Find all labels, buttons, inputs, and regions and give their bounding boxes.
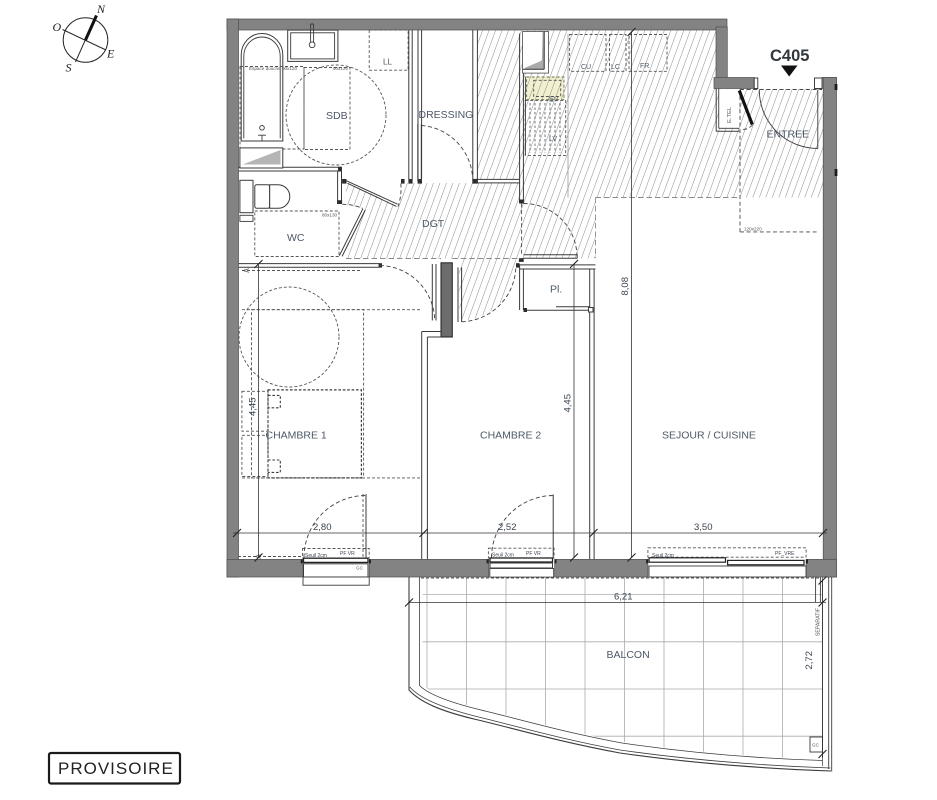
svg-text:PROVISOIRE: PROVISOIRE: [58, 759, 174, 778]
svg-text:LC: LC: [611, 64, 620, 71]
svg-text:N: N: [96, 2, 106, 16]
svg-text:LV: LV: [549, 136, 557, 143]
svg-text:4,45: 4,45: [248, 398, 259, 417]
svg-text:2,72: 2,72: [804, 651, 815, 670]
svg-text:80x130: 80x130: [322, 213, 338, 218]
svg-text:2,52: 2,52: [498, 522, 517, 533]
svg-text:BALCON: BALCON: [607, 649, 650, 661]
svg-text:120x220: 120x220: [744, 227, 762, 232]
svg-text:Espace douche 90x120: Espace douche 90x120: [249, 66, 297, 71]
svg-text:E: E: [106, 47, 115, 61]
svg-text:EV: EV: [549, 97, 559, 104]
svg-text:E.TEL: E.TEL: [727, 106, 733, 123]
svg-text:WC: WC: [287, 232, 305, 244]
svg-text:GC: GC: [812, 743, 820, 748]
svg-text:2,80: 2,80: [313, 522, 332, 533]
svg-text:4,45: 4,45: [563, 394, 574, 413]
svg-text:Seuil 2cm: Seuil 2cm: [492, 553, 514, 559]
svg-text:CHAMBRE 2: CHAMBRE 2: [480, 430, 541, 442]
svg-text:C405: C405: [770, 47, 809, 65]
svg-text:SDB: SDB: [326, 110, 348, 122]
svg-text:LL: LL: [383, 58, 392, 67]
svg-text:8,08: 8,08: [620, 277, 631, 296]
svg-text:FR: FR: [640, 63, 649, 70]
svg-text:DGT: DGT: [422, 218, 445, 230]
svg-text:ENTREE: ENTREE: [767, 129, 810, 141]
svg-text:PF VR: PF VR: [340, 551, 355, 557]
svg-text:CU: CU: [581, 64, 591, 71]
svg-text:DRESSING: DRESSING: [419, 109, 474, 121]
svg-text:PF VR: PF VR: [526, 551, 541, 557]
svg-text:SEJOUR / CUISINE: SEJOUR / CUISINE: [662, 430, 756, 442]
svg-text:GC: GC: [356, 566, 364, 571]
svg-text:SEPARATIF: SEPARATIF: [816, 608, 822, 636]
svg-text:O: O: [53, 20, 62, 34]
svg-text:Seuil 2cm: Seuil 2cm: [652, 553, 674, 559]
svg-text:Seuil 2cm: Seuil 2cm: [305, 553, 327, 559]
svg-text:PF_VRE: PF_VRE: [775, 551, 795, 557]
svg-text:Pl.: Pl.: [550, 284, 562, 296]
svg-text:CHAMBRE 1: CHAMBRE 1: [266, 430, 327, 442]
svg-text:S: S: [66, 61, 72, 75]
svg-text:3,50: 3,50: [694, 522, 713, 533]
svg-text:90x120: 90x120: [333, 66, 349, 71]
svg-text:6,21: 6,21: [614, 592, 633, 603]
